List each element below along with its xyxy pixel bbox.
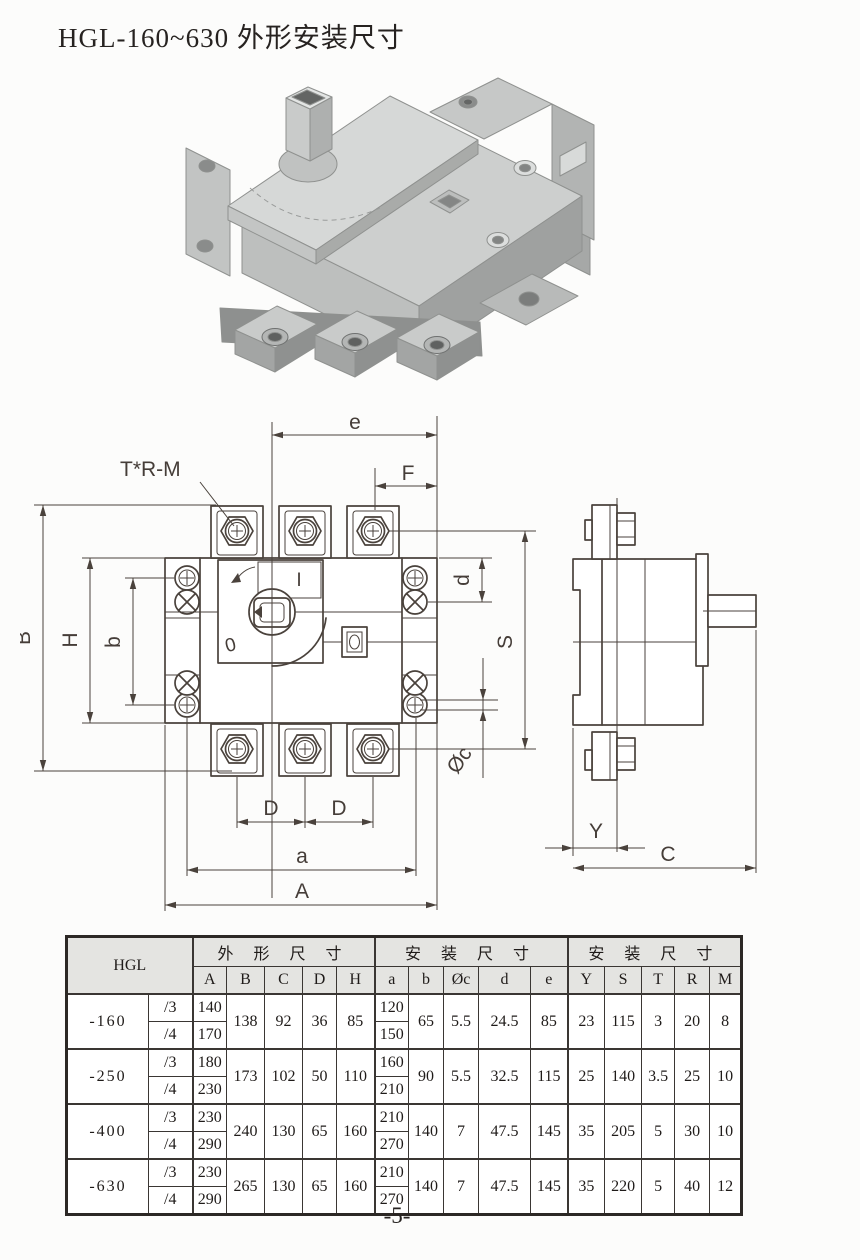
col-header-C: C [265,967,303,995]
col-header-oc: Øc [444,967,479,995]
table-row: -400 /3 230 240 130 65 160 210 140 7 47.… [67,1104,742,1132]
cell-Y: 23 [568,994,605,1049]
cell-M: 8 [710,994,742,1049]
variant-cell: /3 [149,1159,193,1187]
catalog-page: HGL-160~630 外形安装尺寸 [0,0,860,1260]
dim-label-d: d [451,574,474,586]
cell-T: 5 [642,1104,675,1159]
cell-Y: 25 [568,1049,605,1104]
dim-label-D2: D [331,797,346,820]
cell-S: 115 [605,994,642,1049]
group-header-outline: 外 形 尺 寸 [193,937,375,967]
operating-shaft [279,87,337,182]
isometric-product-figure [180,68,620,403]
cell-oc: 5.5 [444,1049,479,1104]
cell-A: 230 [193,1159,227,1187]
col-header-D: D [303,967,337,995]
variant-cell: /3 [149,1104,193,1132]
cell-A: 230 [193,1104,227,1132]
cell-oc: 5.5 [444,994,479,1049]
switch-position-on-label: I [296,570,301,591]
col-header-b: b [409,967,444,995]
model-cell: -400 [67,1104,149,1159]
group-header-install-2: 安 装 尺 寸 [568,937,742,967]
cell-H: 110 [337,1049,375,1104]
model-cell: -250 [67,1049,149,1104]
cell-A: 290 [193,1132,227,1160]
cell-R: 20 [675,994,710,1049]
dim-label-D1: D [263,797,278,820]
cell-d: 32.5 [479,1049,531,1104]
table-row: -630 /3 230 265 130 65 160 210 140 7 47.… [67,1159,742,1187]
cell-C: 130 [265,1104,303,1159]
col-header-S: S [605,967,642,995]
model-cell: -160 [67,994,149,1049]
cell-b: 140 [409,1104,444,1159]
front-view: I 0 [165,506,437,776]
table-row: -250 /3 180 173 102 50 110 160 90 5.5 32… [67,1049,742,1077]
col-header-a: a [375,967,409,995]
dim-label-b: b [102,636,125,648]
cell-D: 65 [303,1104,337,1159]
group-header-install-1: 安 装 尺 寸 [375,937,568,967]
cell-C: 92 [265,994,303,1049]
cell-A: 140 [193,994,227,1022]
col-header-H: H [337,967,375,995]
col-header-B: B [227,967,265,995]
dim-label-S: S [494,635,517,649]
cell-A: 170 [193,1022,227,1050]
table-corner-label: HGL [67,937,193,995]
dim-label-B: B [20,631,35,645]
cell-a: 270 [375,1132,409,1160]
cell-e: 115 [531,1049,568,1104]
cell-d: 47.5 [479,1104,531,1159]
dim-label-F: F [402,462,415,485]
cell-A: 180 [193,1049,227,1077]
dim-label-a: a [296,845,308,868]
cell-Y: 35 [568,1104,605,1159]
dimension-drawing: I 0 [20,410,840,920]
cell-M: 10 [710,1049,742,1104]
cell-S: 140 [605,1049,642,1104]
variant-cell: /3 [149,1049,193,1077]
terminal-lugs [220,306,482,380]
col-header-e: e [531,967,568,995]
dim-label-C: C [660,843,675,866]
variant-cell: /4 [149,1077,193,1105]
dim-label-phi-c: Øc [443,743,477,778]
dimension-drawing-figure: I 0 [20,410,840,920]
page-number: -5- [0,1203,794,1229]
page-title: HGL-160~630 外形安装尺寸 [58,16,405,55]
cell-H: 160 [337,1104,375,1159]
col-header-A: A [193,967,227,995]
cell-S: 205 [605,1104,642,1159]
col-header-M: M [710,967,742,995]
dimension-table: HGL 外 形 尺 寸 安 装 尺 寸 安 装 尺 寸 A B C D H a … [65,935,743,1216]
cell-M: 10 [710,1104,742,1159]
cell-a: 210 [375,1104,409,1132]
cell-D: 36 [303,994,337,1049]
table-row: -160 /3 140 138 92 36 85 120 65 5.5 24.5… [67,994,742,1022]
cell-C: 102 [265,1049,303,1104]
cell-B: 173 [227,1049,265,1104]
cell-a: 210 [375,1159,409,1187]
dim-label-e: e [349,411,361,434]
cell-R: 30 [675,1104,710,1159]
cell-D: 50 [303,1049,337,1104]
dim-label-H: H [59,632,82,647]
cell-A: 230 [193,1077,227,1105]
cell-oc: 7 [444,1104,479,1159]
cell-T: 3 [642,994,675,1049]
thread-callout-label: T*R-M [120,458,181,481]
cell-b: 65 [409,994,444,1049]
cell-e: 145 [531,1104,568,1159]
cell-a: 160 [375,1049,409,1077]
cell-a: 210 [375,1077,409,1105]
col-header-Y: Y [568,967,605,995]
cell-a: 120 [375,994,409,1022]
left-mounting-flange [186,148,230,276]
col-header-T: T [642,967,675,995]
variant-cell: /3 [149,994,193,1022]
col-header-d: d [479,967,531,995]
variant-cell: /4 [149,1022,193,1050]
side-view [573,498,756,852]
dim-label-Y: Y [589,820,603,843]
isometric-view [180,68,620,403]
cell-R: 25 [675,1049,710,1104]
variant-cell: /4 [149,1132,193,1160]
cell-b: 90 [409,1049,444,1104]
cell-B: 138 [227,994,265,1049]
cell-H: 85 [337,994,375,1049]
dim-label-A: A [295,880,309,903]
cell-d: 24.5 [479,994,531,1049]
cell-B: 240 [227,1104,265,1159]
cell-e: 85 [531,994,568,1049]
cell-T: 3.5 [642,1049,675,1104]
cell-a: 150 [375,1022,409,1050]
col-header-R: R [675,967,710,995]
